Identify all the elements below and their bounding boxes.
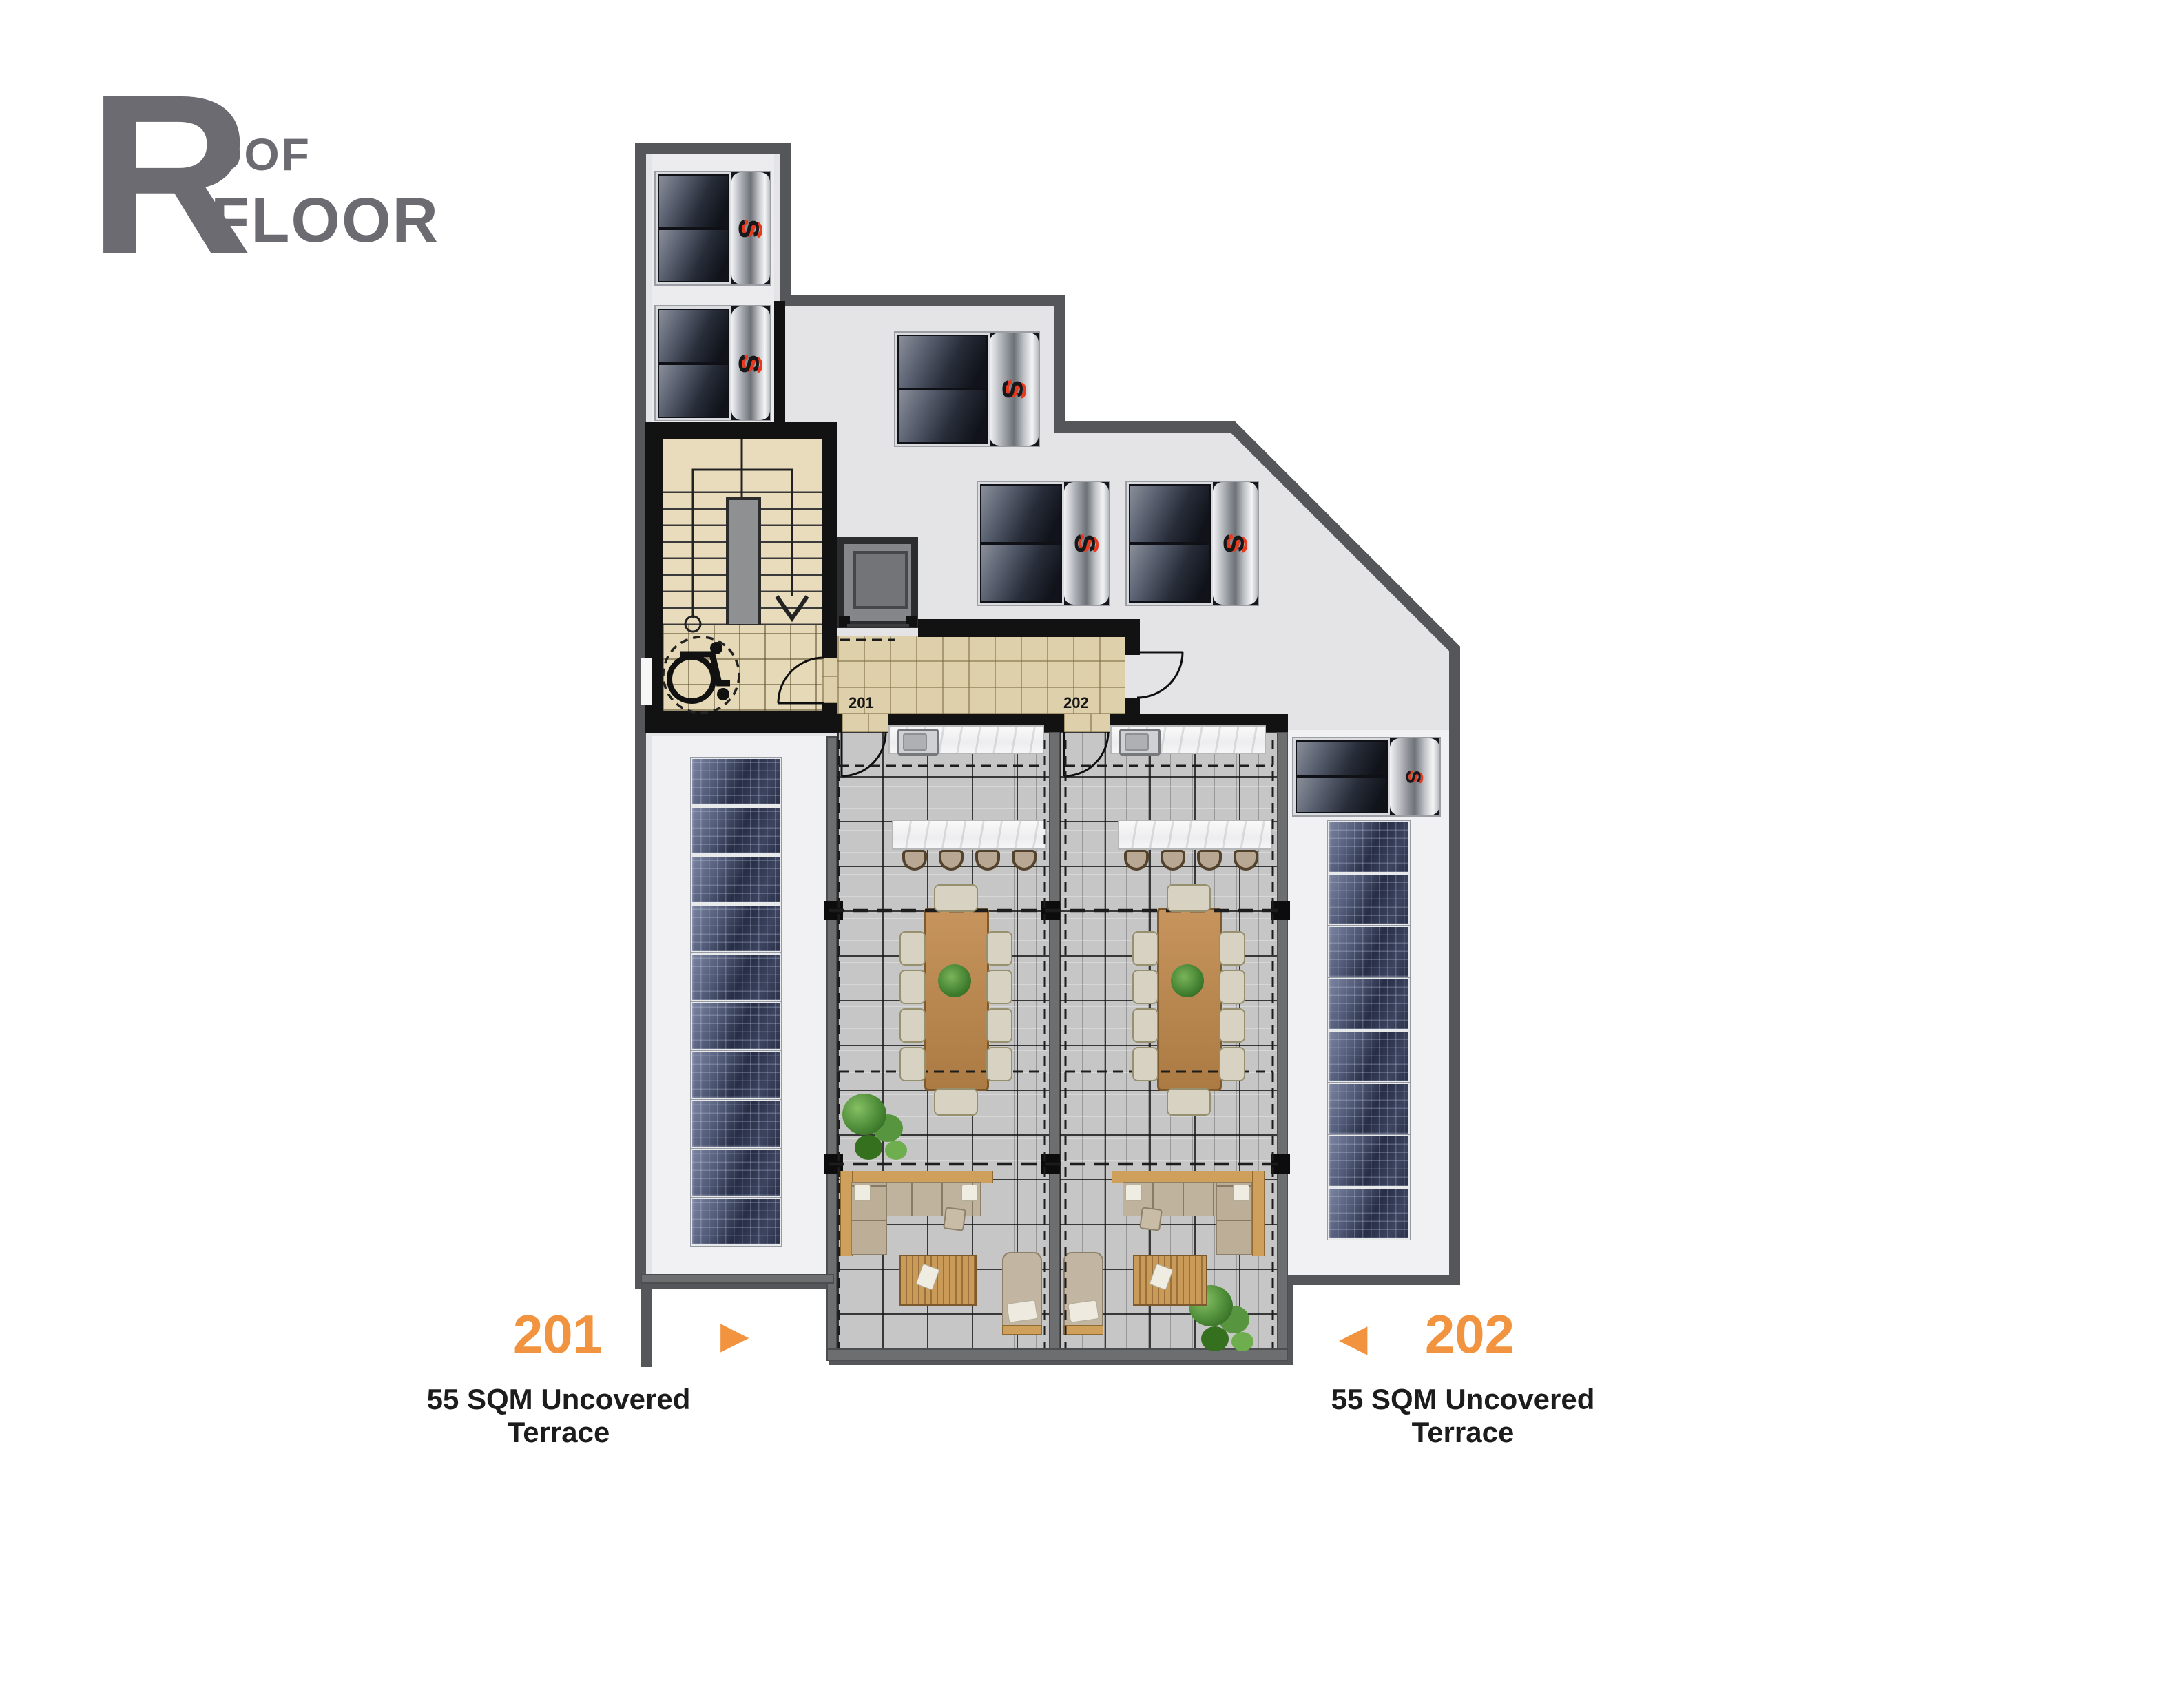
dining-chair: [1219, 1008, 1245, 1043]
solar-water-heater: SS: [656, 306, 770, 420]
pv-panel: [1328, 821, 1410, 873]
sofa: [1252, 1171, 1265, 1256]
chaise-lounge: [1002, 1252, 1042, 1335]
logo-word-oof: OOF: [207, 128, 311, 180]
pv-panel: [1328, 1135, 1410, 1187]
dining-chair: [1132, 970, 1158, 1004]
stairwell-window: [641, 658, 652, 705]
pv-panel: [691, 1002, 781, 1050]
pv-panel: [1328, 926, 1410, 978]
water-heater-panels: [978, 482, 1064, 605]
hallway-label-202: 202: [1063, 694, 1089, 712]
solar-water-heater: SS: [978, 482, 1109, 605]
chaise-lounge: [1063, 1252, 1103, 1335]
coffee-table: [899, 1255, 977, 1306]
stair-core-wall: [726, 497, 761, 627]
column: [1041, 1154, 1060, 1174]
dining-chair: [1132, 1047, 1158, 1081]
elevator: [837, 537, 918, 628]
bar-counter-202: [1118, 820, 1273, 850]
solar-water-heater: SS: [1127, 482, 1258, 605]
legend-unit-201: 201: [482, 1307, 634, 1361]
unit-202-arrow-left-icon: ◀: [1339, 1320, 1368, 1357]
corridor-end-wall: [1125, 698, 1140, 714]
pv-panel: [1328, 978, 1410, 1030]
column: [1271, 1154, 1290, 1174]
terrace-201-door-opening: [842, 714, 888, 732]
brand-logo-icon: SS: [1408, 770, 1421, 784]
table-plant: [1171, 964, 1204, 997]
brand-logo-icon: SS: [742, 353, 760, 373]
brand-logo-icon: SS: [1227, 534, 1245, 553]
dining-chair: [1219, 970, 1245, 1004]
pv-panel: [691, 1051, 781, 1099]
elevator-car: [853, 551, 908, 609]
pv-panel: [691, 1100, 781, 1148]
dining-chair: [986, 931, 1012, 966]
chaise-frame: [1002, 1325, 1042, 1335]
corridor-bottom-wall: [829, 714, 842, 732]
dining-chair: [934, 1088, 978, 1116]
stair-door-opening: [822, 658, 837, 703]
pv-panel: [691, 1198, 781, 1246]
pillow: [1006, 1300, 1037, 1323]
wall-segment: [774, 301, 785, 425]
dining-chair: [1132, 1008, 1158, 1043]
dining-table-202: [1157, 908, 1222, 1091]
solar-water-heater: SS: [1293, 738, 1439, 815]
unit-201-arrow-right-icon: ▶: [720, 1317, 749, 1354]
water-heater-tank: SS: [731, 172, 770, 284]
pv-panel: [1328, 1030, 1410, 1083]
pv-panel: [691, 953, 781, 1001]
water-heater-panels: [1127, 482, 1213, 605]
solar-water-heater: SS: [656, 172, 770, 284]
elevator-door-post: [906, 616, 917, 627]
pv-panel: [691, 758, 781, 806]
dining-chair: [986, 1008, 1012, 1043]
sink-icon: [1119, 729, 1161, 756]
water-heater-tank: SS: [990, 333, 1039, 446]
dining-chair: [899, 1047, 926, 1081]
terrace-201-caption: 55 SQM Uncovered Terrace: [379, 1383, 738, 1449]
sink-icon: [897, 729, 939, 756]
water-heater-panels: [656, 172, 731, 284]
chaise-frame: [1063, 1325, 1103, 1335]
water-heater-tank: SS: [1213, 482, 1258, 605]
legend-unit-202: 202: [1394, 1307, 1546, 1361]
water-heater-tank: SS: [731, 306, 770, 420]
dining-chair: [1219, 1047, 1245, 1081]
dining-chair: [934, 884, 978, 912]
dining-chair: [899, 1008, 926, 1043]
water-heater-panels: [1293, 738, 1390, 815]
table-plant: [938, 964, 971, 997]
terrace-bottom-wall: [826, 1348, 1288, 1361]
dining-chair: [1132, 931, 1158, 966]
pillow: [1068, 1300, 1099, 1323]
dining-chair: [986, 970, 1012, 1004]
plant: [842, 1094, 886, 1135]
hallway-label-201: 201: [849, 694, 874, 712]
pillow: [854, 1185, 871, 1201]
terrace-divider-wall: [1049, 732, 1060, 1360]
water-heater-panels: [656, 306, 731, 420]
water-heater-tank: SS: [1064, 482, 1109, 605]
terrace-202-door-opening: [1064, 714, 1110, 732]
dining-chair: [1219, 931, 1245, 966]
coffee-table: [1133, 1255, 1207, 1306]
corridor-end-wall: [1125, 636, 1140, 655]
corridor-east-door-opening: [1125, 655, 1140, 698]
terrace-right-wall: [1277, 732, 1288, 1360]
dining-chair: [1167, 884, 1211, 912]
column: [1041, 901, 1060, 920]
pillow: [961, 1185, 978, 1201]
solar-water-heater: SS: [895, 333, 1039, 446]
water-heater-tank: SS: [1390, 738, 1439, 815]
pv-panel: [691, 806, 781, 855]
dining-chair: [986, 1047, 1012, 1081]
pillow: [1233, 1185, 1249, 1201]
pillow: [1125, 1185, 1142, 1201]
terrace-left-wall: [826, 736, 837, 1360]
pv-panel: [1328, 1187, 1410, 1240]
pv-panel: [1328, 873, 1410, 926]
stair-landing-floor: [663, 625, 822, 711]
pv-panel: [691, 855, 781, 904]
dining-table-201: [924, 908, 989, 1091]
ottoman: [943, 1207, 966, 1231]
water-heater-panels: [895, 333, 990, 446]
corridor-top-wall: [918, 619, 1140, 637]
elevator-door-post: [839, 616, 850, 627]
brand-logo-icon: SS: [742, 218, 760, 238]
pv-panel: [1328, 1083, 1410, 1135]
bar-counter-201: [892, 820, 1047, 850]
dining-chair: [899, 970, 926, 1004]
brand-logo-icon: SS: [1078, 534, 1096, 553]
pv-panel: [691, 904, 781, 952]
pv-panel: [691, 1149, 781, 1197]
terrace-202-caption: 55 SQM Uncovered Terrace: [1284, 1383, 1642, 1449]
dining-chair: [899, 931, 926, 966]
brand-logo-icon: SS: [1006, 379, 1023, 399]
dining-chair: [1167, 1088, 1211, 1116]
column: [1271, 901, 1290, 920]
ottoman: [1139, 1207, 1163, 1231]
logo-word-floor: FLOOR: [211, 185, 439, 257]
column: [824, 901, 843, 920]
left-strip-bottom-wall: [641, 1274, 834, 1284]
roof-floor-plan-page: R OOF FLOOR: [0, 0, 2164, 1708]
